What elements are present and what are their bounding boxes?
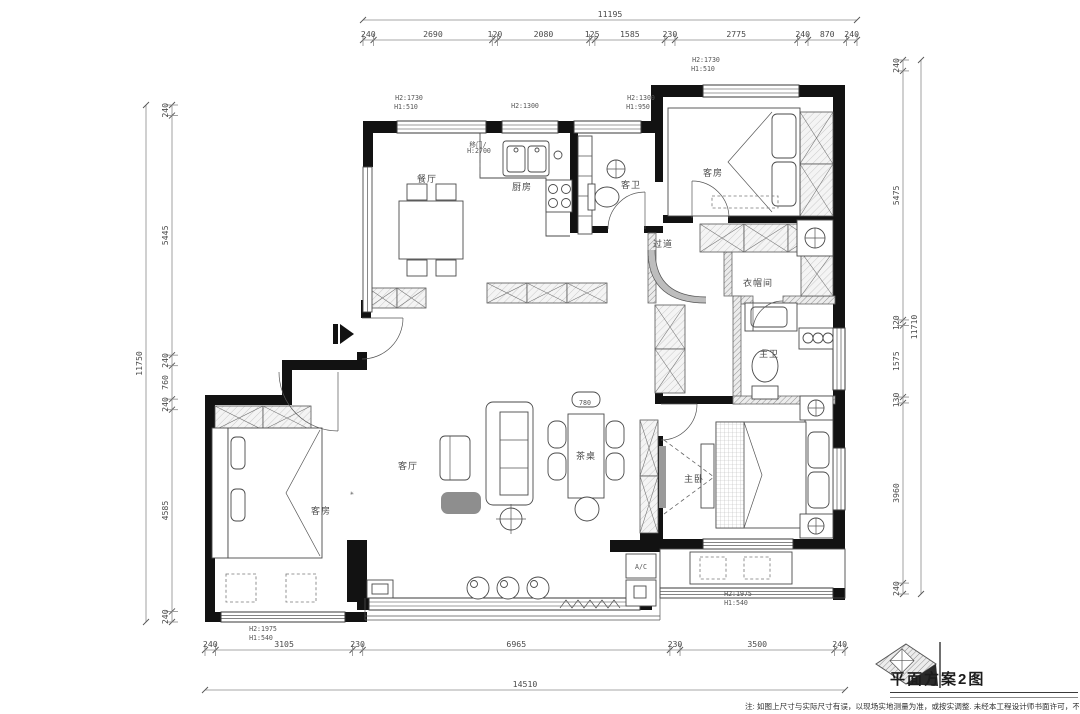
chair (548, 453, 566, 480)
dim-left: 2405445240760240458524011750 (134, 102, 178, 625)
chair (606, 421, 624, 448)
win-h-label: H2:1730 (395, 94, 423, 102)
stool (575, 497, 599, 521)
dimension-value: 240 (160, 103, 170, 118)
window-seat-cushion (286, 574, 316, 602)
dimension-value: 11750 (134, 351, 144, 376)
win-h-label: H1:540 (724, 599, 748, 607)
win-h-label: H2:1975 (724, 590, 752, 598)
plant-icon: ✳ (350, 489, 354, 497)
title-underline (890, 692, 1078, 698)
win-h-label: H2:1300 (511, 102, 539, 110)
room-label-guest-room-1: 客房 (703, 167, 723, 178)
door-swing (661, 404, 697, 440)
dimension-value: 240 (795, 29, 810, 39)
room-label-kitchen: 厨房 (512, 181, 532, 192)
dimension-value: 5445 (160, 225, 170, 245)
win-h-label: H1:510 (394, 103, 418, 111)
dimension-value: 14510 (513, 679, 538, 689)
dimension-value: 240 (160, 397, 170, 412)
room-label-closet: 衣帽间 (743, 277, 773, 288)
room-label-master-bath: 主卫 (759, 348, 779, 359)
win-h-label: H1:540 (249, 634, 273, 642)
footnote: 注: 如图上尺寸与实际尺寸有误，以现场实地测量为准，或按实调整. 未经本工程设计… (745, 701, 1079, 712)
tea-table-dim: 780 (579, 399, 591, 407)
pillow (231, 489, 245, 521)
door-note-2: H:2700 (467, 147, 491, 155)
dimension-value: 125 (585, 29, 600, 39)
win-h-label: H2:1730 (692, 56, 720, 64)
dimension-value: 11710 (909, 315, 919, 340)
window (221, 612, 345, 622)
guest-bath-fixtures (588, 160, 645, 229)
dim-right: 24054751201575130396024011710 (891, 57, 924, 597)
balcony-stool (527, 577, 549, 599)
win-h-label: H2:1975 (249, 625, 277, 633)
dimension-value: 120 (891, 315, 901, 330)
dimension-value: 1585 (620, 29, 640, 39)
dimension-value: 240 (891, 58, 901, 73)
master-bedroom-furniture (659, 396, 833, 538)
window (703, 85, 799, 97)
dimension-value: 240 (160, 609, 170, 624)
washer-counter (799, 328, 833, 349)
dimension-value: 870 (820, 29, 835, 39)
dining-set (399, 184, 463, 276)
room-label-dining: 餐厅 (417, 173, 437, 184)
toilet (595, 187, 619, 207)
sofa (486, 402, 533, 505)
pillow (808, 432, 829, 468)
dimension-value: 2080 (534, 29, 554, 39)
dimension-value: 11195 (598, 9, 623, 19)
dimension-value: 130 (891, 393, 901, 408)
dimension-value: 240 (203, 639, 218, 649)
dimension-value: 6965 (506, 639, 526, 649)
living-room-furniture (440, 392, 624, 534)
entry-arrow-icon (340, 324, 354, 344)
entry (333, 318, 403, 359)
room-label-guest-bath: 客卫 (621, 179, 641, 190)
dimension-value: 2690 (423, 29, 443, 39)
tv-panel (659, 446, 666, 508)
dimension-value: 240 (361, 29, 376, 39)
dimension-value: 760 (160, 375, 170, 390)
dimension-value: 240 (160, 353, 170, 368)
window (833, 448, 845, 510)
floor-plan-canvas: 2402690120208012515852302775240870240111… (0, 0, 1080, 714)
dim-bottom: 24031052306965230350024014510 (202, 639, 848, 693)
dimension-value: 230 (668, 639, 683, 649)
chair (606, 453, 624, 480)
floor-plan-page: 2402690120208012515852302775240870240111… (0, 0, 1080, 714)
room-label-master-bed: 主卧 (684, 473, 704, 484)
dimension-value: 5475 (891, 186, 901, 206)
balcony-stool (497, 577, 519, 599)
window (703, 539, 793, 549)
dimension-value: 4585 (160, 501, 170, 521)
door-swing (362, 318, 403, 359)
win-h-label: H1:950 (626, 103, 650, 111)
dimension-value: 3500 (747, 639, 767, 649)
balcony-stool (467, 577, 489, 599)
armchair (440, 436, 470, 480)
dimension-value: 3105 (274, 639, 294, 649)
room-label-living: 客厅 (398, 460, 418, 471)
drawing-title: 平面方案2图 (890, 668, 1078, 689)
ac-unit-label: A/C (635, 563, 647, 571)
chair (548, 421, 566, 448)
room-label-tea-table: 茶桌 (576, 450, 596, 461)
toilet-tank (588, 184, 595, 210)
balcony-bench (690, 552, 792, 584)
window-seat-cushion (226, 574, 256, 602)
pillow (808, 472, 829, 508)
win-h-label: H2:1300 (627, 94, 655, 102)
dim-top: 2402690120208012515852302775240870240111… (360, 9, 860, 46)
window (397, 121, 486, 133)
dimension-value: 1575 (891, 351, 901, 371)
dimension-value: 240 (832, 639, 847, 649)
dimension-value: 240 (891, 581, 901, 596)
dimension-value: 2775 (726, 29, 746, 39)
pillow (772, 162, 796, 206)
window (833, 328, 845, 390)
dimension-value: 240 (844, 29, 859, 39)
window (502, 121, 558, 133)
dimension-value: 230 (350, 639, 365, 649)
pillow (231, 437, 245, 469)
title-block: 平面方案2图 (890, 668, 1078, 698)
headboard (212, 428, 228, 558)
room-label-guest-room-2: 客房 (311, 505, 331, 516)
dimension-value: 230 (663, 29, 678, 39)
win-h-label: H1:510 (691, 65, 715, 73)
room-label-hallway: 过道 (653, 238, 673, 249)
pillow (772, 114, 796, 158)
dimension-value: 3960 (891, 483, 901, 503)
window (574, 121, 641, 133)
dimension-value: 120 (488, 29, 503, 39)
ottoman (441, 492, 481, 514)
